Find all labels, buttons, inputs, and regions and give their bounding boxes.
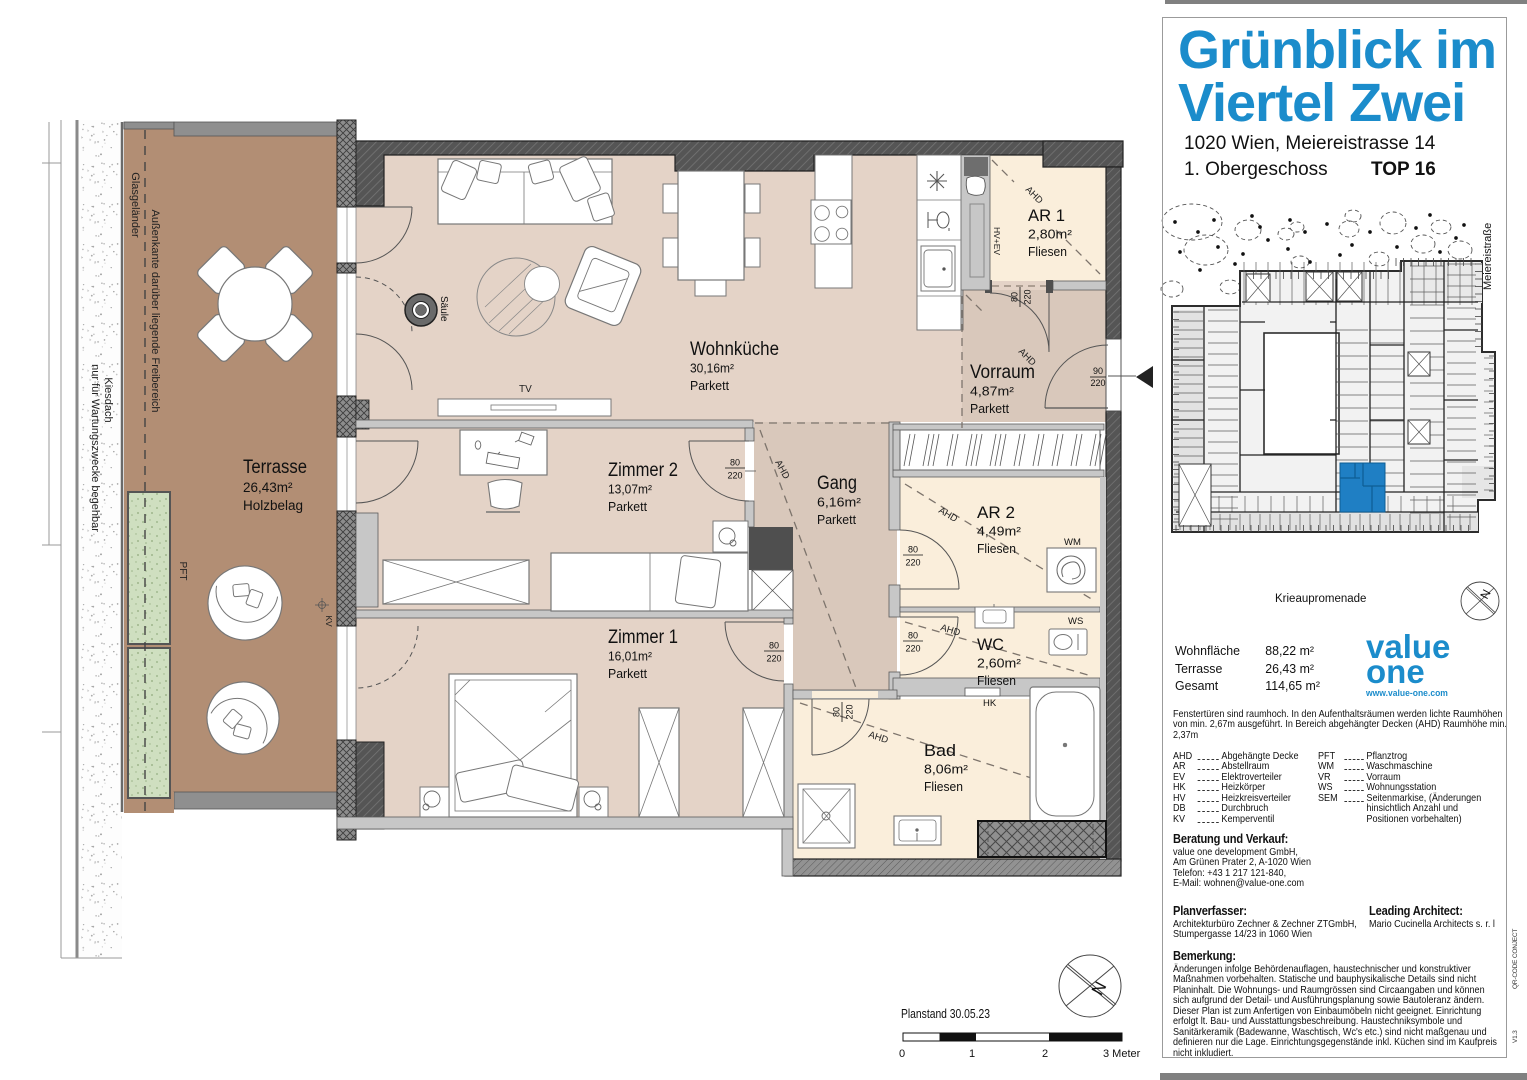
svg-text:4,87m²: 4,87m² [970, 384, 1015, 399]
svg-text:Fliesen: Fliesen [977, 673, 1016, 688]
svg-text:3 Meter: 3 Meter [1103, 1048, 1141, 1060]
svg-text:Glasgeländer: Glasgeländer [129, 172, 141, 238]
svg-text:0: 0 [899, 1048, 905, 1060]
svg-text:AR 1: AR 1 [1028, 206, 1065, 225]
svg-text:Zimmer 1: Zimmer 1 [608, 627, 678, 648]
svg-text:30,16m²: 30,16m² [690, 361, 735, 376]
svg-text:220: 220 [1023, 289, 1033, 304]
svg-text:80: 80 [908, 545, 918, 555]
svg-text:Bad: Bad [924, 741, 956, 760]
svg-text:HV+EV: HV+EV [992, 227, 1002, 255]
svg-text:13,07m²: 13,07m² [608, 482, 653, 497]
svg-text:Kiesdach: Kiesdach [102, 377, 114, 422]
svg-text:8,06m²: 8,06m² [924, 762, 969, 777]
svg-text:Holzbelag: Holzbelag [243, 498, 303, 513]
svg-text:80: 80 [832, 707, 842, 717]
svg-text:2,60m²: 2,60m² [977, 656, 1022, 671]
svg-text:6,16m²: 6,16m² [817, 495, 862, 510]
svg-text:KV: KV [324, 615, 334, 627]
svg-text:4,49m²: 4,49m² [977, 524, 1022, 539]
svg-text:Terrasse: Terrasse [243, 457, 307, 478]
svg-text:16,01m²: 16,01m² [608, 649, 653, 664]
svg-text:80: 80 [908, 631, 918, 641]
svg-text:Wohnküche: Wohnküche [690, 339, 779, 360]
svg-text:220: 220 [727, 471, 742, 481]
svg-text:WS: WS [1068, 616, 1083, 627]
svg-text:Außenkante darüber liegende Fr: Außenkante darüber liegende Freibereich [149, 209, 161, 412]
svg-text:220: 220 [1090, 378, 1105, 388]
svg-text:Fliesen: Fliesen [977, 541, 1016, 556]
svg-text:220: 220 [766, 654, 781, 664]
svg-text:Säule: Säule [438, 296, 449, 322]
svg-text:PFT: PFT [177, 562, 188, 581]
svg-text:WM: WM [1064, 537, 1081, 548]
svg-text:Gang: Gang [817, 473, 857, 494]
svg-text:2,80m²: 2,80m² [1028, 227, 1073, 242]
svg-text:Parkett: Parkett [817, 512, 856, 527]
svg-text:AR 2: AR 2 [977, 503, 1015, 522]
svg-text:Zimmer 2: Zimmer 2 [608, 460, 678, 481]
svg-text:Fliesen: Fliesen [924, 779, 963, 794]
svg-text:220: 220 [905, 558, 920, 568]
svg-text:Parkett: Parkett [970, 401, 1009, 416]
svg-text:Parkett: Parkett [608, 666, 647, 681]
svg-text:220: 220 [905, 644, 920, 654]
svg-text:Planstand 30.05.23: Planstand 30.05.23 [901, 1007, 990, 1021]
svg-text:80: 80 [1010, 292, 1020, 302]
svg-text:220: 220 [845, 704, 855, 719]
svg-text:HK: HK [983, 698, 997, 709]
svg-text:Parkett: Parkett [608, 499, 647, 514]
svg-text:TV: TV [519, 384, 532, 395]
svg-text:80: 80 [769, 641, 779, 651]
svg-text:nur für Wartungszwecke begehba: nur für Wartungszwecke begehbar [89, 364, 101, 532]
svg-text:1: 1 [969, 1048, 975, 1060]
svg-text:2: 2 [1042, 1048, 1048, 1060]
svg-text:Vorraum: Vorraum [970, 362, 1035, 383]
svg-text:Fliesen: Fliesen [1028, 244, 1067, 259]
svg-text:26,43m²: 26,43m² [243, 480, 293, 495]
svg-text:90: 90 [1093, 366, 1103, 376]
svg-text:80: 80 [730, 458, 740, 468]
svg-text:Parkett: Parkett [690, 378, 729, 393]
svg-text:WC: WC [977, 635, 1004, 654]
